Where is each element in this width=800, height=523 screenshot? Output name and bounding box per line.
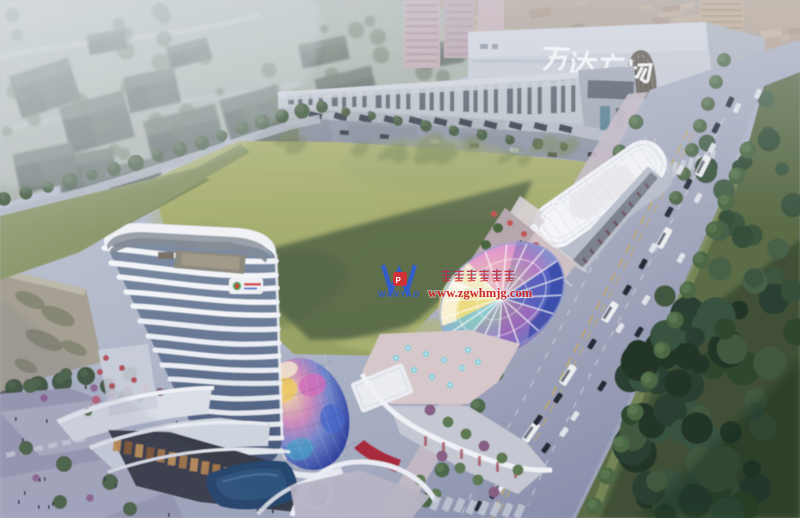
svg-text:WANYAO: WANYAO <box>378 290 420 299</box>
svg-text:P: P <box>396 276 402 285</box>
svg-text:www.zgwhmjg.com: www.zgwhmjg.com <box>428 286 533 300</box>
